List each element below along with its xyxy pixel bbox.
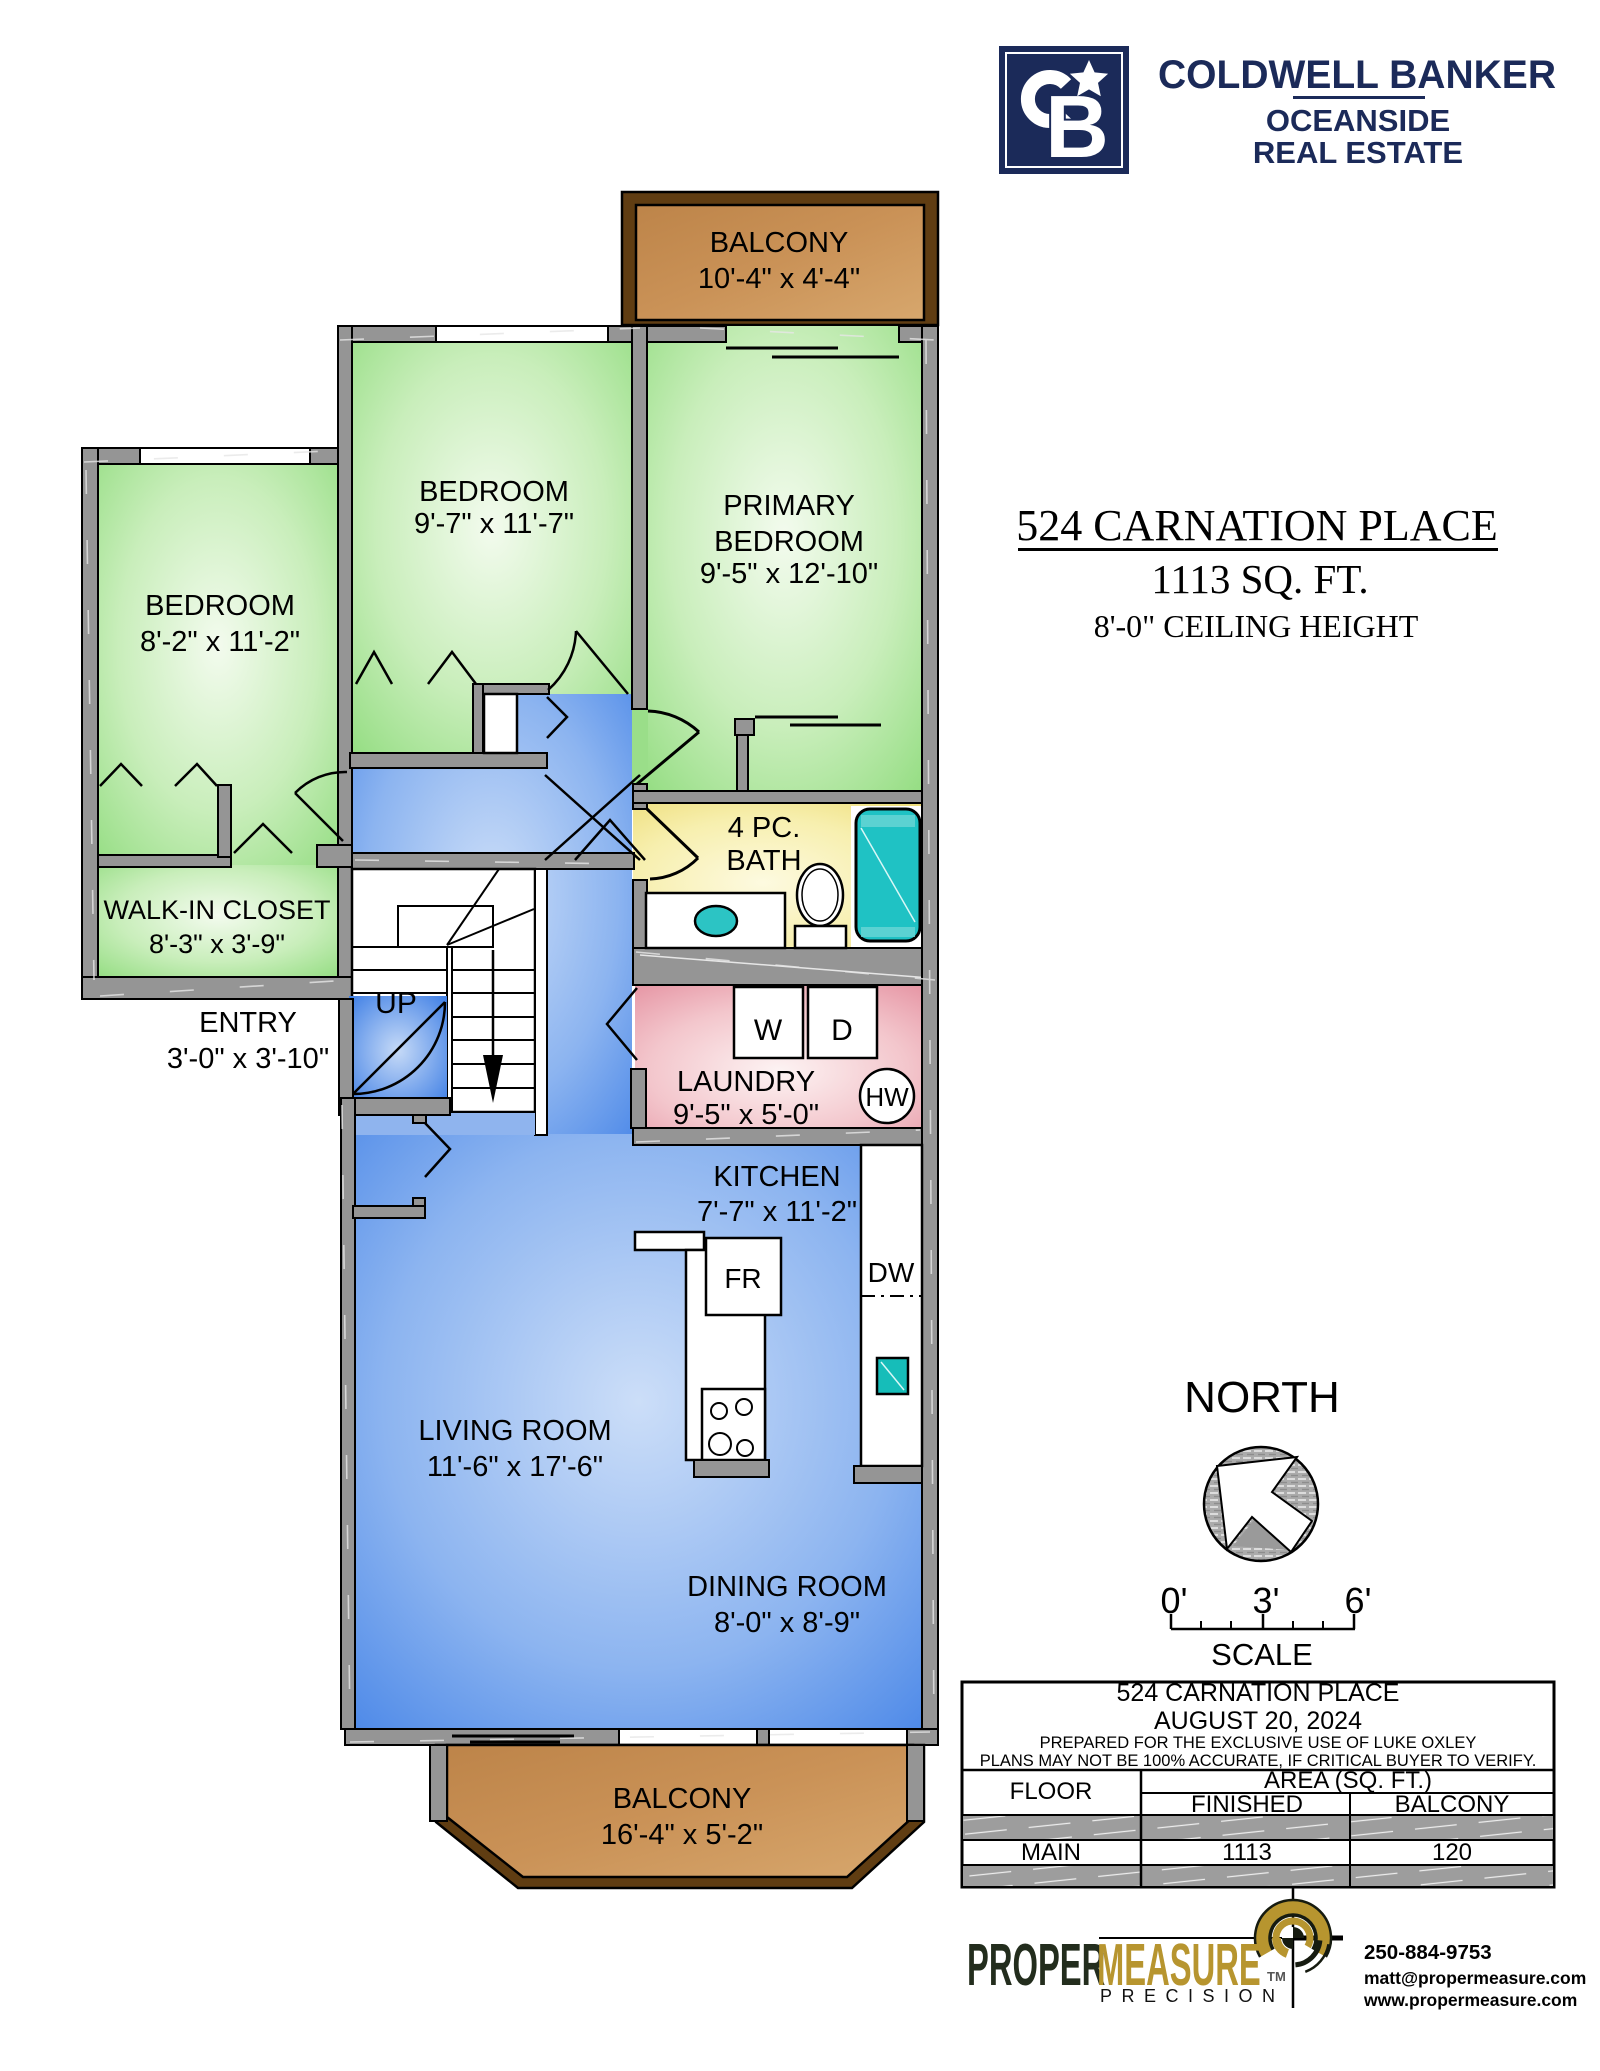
svg-text:16'-4" x 5'-2": 16'-4" x 5'-2" <box>601 1819 763 1851</box>
svg-text:LAUNDRY: LAUNDRY <box>677 1066 815 1098</box>
svg-text:www.propermeasure.com: www.propermeasure.com <box>1363 1990 1577 2010</box>
svg-text:WALK-IN CLOSET: WALK-IN CLOSET <box>103 895 330 925</box>
svg-text:BALCONY: BALCONY <box>613 1783 752 1815</box>
svg-text:W: W <box>754 1014 783 1047</box>
svg-text:AREA (SQ. FT.): AREA (SQ. FT.) <box>1264 1767 1432 1794</box>
svg-text:8'-2" x 11'-2": 8'-2" x 11'-2" <box>140 626 300 658</box>
svg-text:8'-3" x 3'-9": 8'-3" x 3'-9" <box>149 929 285 959</box>
svg-text:BEDROOM: BEDROOM <box>145 590 295 622</box>
svg-text:PLANS MAY NOT BE 100% ACCURATE: PLANS MAY NOT BE 100% ACCURATE, IF CRITI… <box>980 1752 1537 1770</box>
svg-text:524 CARNATION PLACE: 524 CARNATION PLACE <box>1117 1679 1400 1707</box>
svg-text:SCALE: SCALE <box>1211 1637 1313 1672</box>
svg-text:250-884-9753: 250-884-9753 <box>1364 1941 1492 1964</box>
svg-text:1113 SQ. FT.: 1113 SQ. FT. <box>1151 556 1368 602</box>
svg-text:BEDROOM: BEDROOM <box>419 476 569 508</box>
svg-text:FR: FR <box>724 1263 761 1294</box>
svg-text:10'-4" x 4'-4": 10'-4" x 4'-4" <box>698 263 860 295</box>
svg-text:4 PC.: 4 PC. <box>728 812 801 844</box>
svg-text:D: D <box>831 1014 853 1047</box>
svg-text:REAL ESTATE: REAL ESTATE <box>1253 135 1463 170</box>
svg-text:FINISHED: FINISHED <box>1191 1791 1303 1818</box>
svg-text:3'-0" x 3'-10": 3'-0" x 3'-10" <box>167 1043 329 1075</box>
svg-text:OCEANSIDE: OCEANSIDE <box>1266 103 1450 138</box>
svg-text:MAIN: MAIN <box>1021 1839 1081 1866</box>
svg-text:PRIMARY: PRIMARY <box>723 490 855 522</box>
svg-text:8'-0" CEILING HEIGHT: 8'-0" CEILING HEIGHT <box>1094 608 1419 644</box>
svg-text:1113: 1113 <box>1222 1839 1272 1866</box>
svg-text:KITCHEN: KITCHEN <box>713 1161 840 1193</box>
svg-text:HW: HW <box>865 1082 909 1112</box>
svg-text:DW: DW <box>868 1257 915 1288</box>
svg-text:9'-7" x 11'-7": 9'-7" x 11'-7" <box>414 508 574 540</box>
svg-text:AUGUST 20, 2024: AUGUST 20, 2024 <box>1154 1707 1362 1735</box>
svg-text:9'-5" x 12'-10": 9'-5" x 12'-10" <box>700 558 878 590</box>
svg-text:PREPARED FOR THE EXCLUSIVE USE: PREPARED FOR THE EXCLUSIVE USE OF LUKE O… <box>1040 1734 1477 1752</box>
svg-text:7'-7" x 11'-2": 7'-7" x 11'-2" <box>697 1196 857 1228</box>
svg-text:BEDROOM: BEDROOM <box>714 526 864 558</box>
svg-text:LIVING ROOM: LIVING ROOM <box>418 1415 611 1447</box>
svg-text:9'-5" x 5'-0": 9'-5" x 5'-0" <box>673 1099 819 1131</box>
svg-text:BALCONY: BALCONY <box>710 227 849 259</box>
svg-text:COLDWELL BANKER: COLDWELL BANKER <box>1158 53 1556 97</box>
svg-text:11'-6" x 17'-6": 11'-6" x 17'-6" <box>427 1451 603 1483</box>
svg-text:120: 120 <box>1432 1839 1472 1866</box>
svg-text:PROPER: PROPER <box>967 1933 1105 1999</box>
svg-text:DINING ROOM: DINING ROOM <box>687 1571 887 1603</box>
svg-text:524 CARNATION PLACE: 524 CARNATION PLACE <box>1016 501 1498 550</box>
svg-text:matt@propermeasure.com: matt@propermeasure.com <box>1364 1968 1586 1988</box>
svg-text:6': 6' <box>1345 1580 1372 1621</box>
svg-text:NORTH: NORTH <box>1184 1373 1340 1422</box>
svg-text:BALCONY: BALCONY <box>1395 1791 1510 1818</box>
svg-text:UP: UP <box>375 987 417 1020</box>
svg-text:3': 3' <box>1253 1580 1280 1621</box>
svg-text:0': 0' <box>1161 1580 1188 1621</box>
svg-text:8'-0" x 8'-9": 8'-0" x 8'-9" <box>714 1607 860 1639</box>
svg-text:FLOOR: FLOOR <box>1010 1778 1093 1805</box>
svg-text:ENTRY: ENTRY <box>199 1007 297 1039</box>
svg-text:PRECISION: PRECISION <box>1100 1986 1285 2006</box>
svg-text:BATH: BATH <box>726 845 801 877</box>
svg-text:TM: TM <box>1267 1969 1286 1984</box>
